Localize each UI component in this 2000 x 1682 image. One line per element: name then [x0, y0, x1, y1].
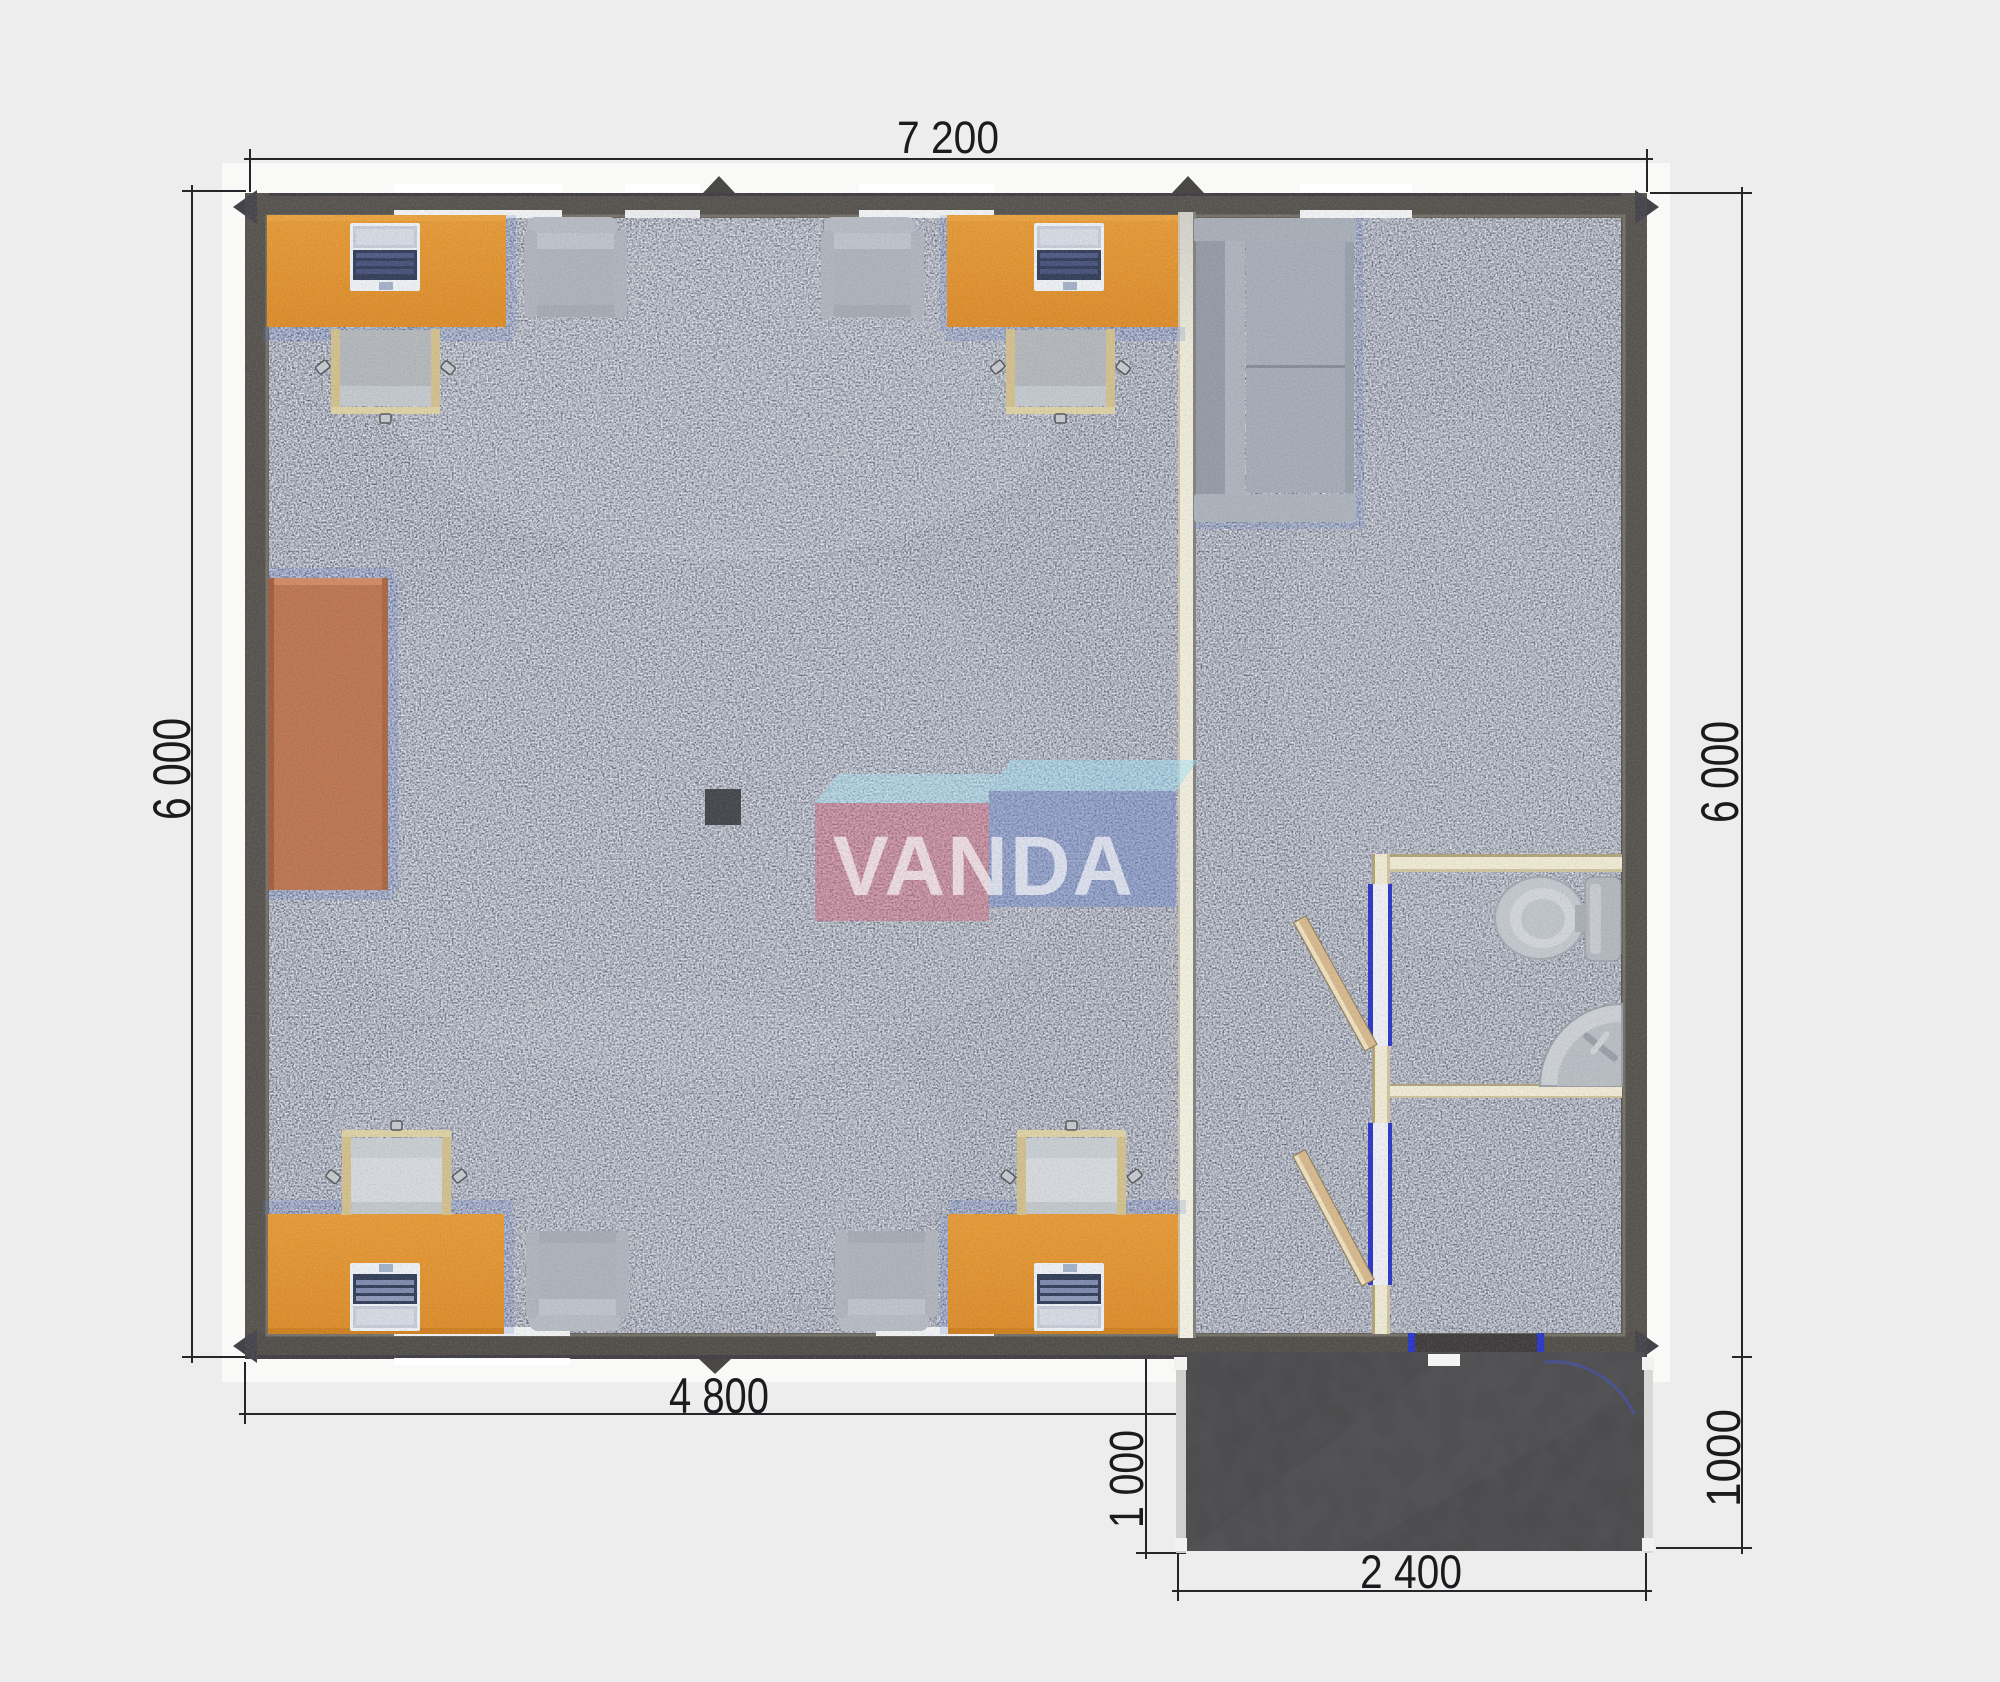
svg-text:1 000: 1 000 — [1101, 1430, 1154, 1528]
svg-text:6 000: 6 000 — [1691, 721, 1750, 823]
svg-text:7 200: 7 200 — [897, 112, 999, 163]
svg-text:4 800: 4 800 — [669, 1368, 769, 1424]
svg-text:1000: 1000 — [1698, 1409, 1751, 1507]
svg-text:2 400: 2 400 — [1360, 1545, 1462, 1598]
svg-text:6 000: 6 000 — [143, 718, 202, 820]
